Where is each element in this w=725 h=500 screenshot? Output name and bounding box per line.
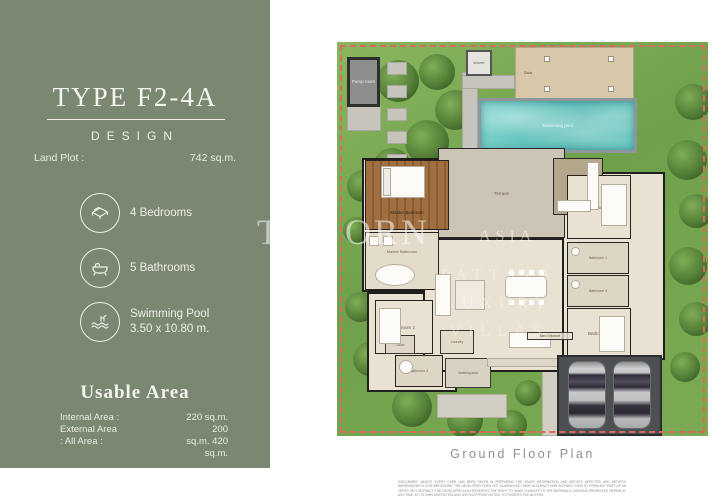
tree: [515, 380, 541, 406]
row-label: : All Area :: [60, 436, 103, 447]
bed: [601, 184, 627, 226]
sala-label: Sala: [524, 70, 532, 75]
bathroom3-label: Bathroom 3: [589, 289, 607, 293]
washing-area-label: Washing area: [458, 371, 478, 375]
disclaimer-text: DISCLAIMER: WHILST EVERY CARE HAS BEEN T…: [398, 480, 626, 497]
brochure-page: { "brochure": { "title": "TYPE F2-4A", "…: [0, 0, 725, 500]
usable-row-external: External Area 200: [60, 424, 228, 435]
outdoor-shower: shower: [466, 50, 492, 76]
tree: [675, 84, 708, 120]
pump-room: Pump room: [347, 57, 380, 107]
sink: [383, 236, 393, 246]
sink: [369, 236, 379, 246]
bed: [379, 308, 401, 344]
feature-bathrooms-label: 5 Bathrooms: [130, 261, 195, 276]
tree: [392, 387, 432, 427]
tree: [419, 54, 455, 90]
stepping-stone: [387, 108, 407, 121]
pool-walkway-top: [462, 75, 515, 89]
bathroom1-label: Bathroom 1: [589, 256, 607, 260]
row-value: sq.m.: [205, 448, 228, 459]
garden-patio: [437, 394, 507, 418]
land-plot-row: Land Plot : 742 sq.m.: [34, 152, 236, 164]
pump-room-label: Pump room: [352, 79, 375, 84]
feature-bathrooms: 5 Bathrooms: [80, 248, 195, 288]
row-value: 200: [212, 424, 228, 435]
spec-panel: TYPE F2-4A DESIGN Land Plot : 742 sq.m. …: [0, 0, 270, 468]
sofa: [435, 274, 451, 316]
bathtub-icon: [80, 248, 120, 288]
main-entrance: Main Entrance: [527, 332, 573, 340]
car: [614, 362, 650, 428]
pump-room-pad: [347, 105, 381, 131]
row-label: Internal Area :: [60, 412, 119, 423]
toilet: [571, 280, 580, 289]
shower-label: shower: [473, 61, 484, 65]
sun-deck: Sala: [515, 47, 634, 100]
bed-pillows: [383, 168, 391, 196]
deck-pillar: [544, 86, 550, 92]
rug: [455, 280, 485, 310]
row-value: 220 sq.m.: [186, 412, 228, 423]
bed: [599, 316, 625, 352]
page-title: TYPE F2-4A: [0, 82, 270, 113]
deck-pillar: [608, 86, 614, 92]
land-plot-label: Land Plot :: [34, 152, 84, 164]
floor-plan: Pump room shower Sala Swimming pool Terr…: [337, 42, 708, 436]
round-tub: [399, 360, 413, 374]
pool-label: Swimming pool: [542, 123, 573, 128]
feature-pool-title: Swimming Pool: [130, 307, 209, 322]
feature-pool-size: 3.50 x 10.80 m.: [130, 322, 209, 337]
tree: [670, 352, 700, 382]
tree: [669, 247, 707, 285]
dining-table: [505, 276, 547, 298]
row-value: sq.m. 420: [186, 436, 228, 447]
feature-bedrooms-label: 4 Bedrooms: [130, 206, 192, 221]
laundry: Laundry: [440, 330, 474, 354]
land-plot-value: 742 sq.m.: [190, 152, 236, 164]
bathtub: [375, 264, 415, 286]
terrace-label: Terrace: [494, 191, 509, 196]
feature-bedrooms: 4 Bedrooms: [80, 193, 192, 233]
feature-pool: Swimming Pool 3.50 x 10.80 m.: [80, 302, 209, 342]
washing-area: Washing area: [445, 358, 491, 388]
subtitle: DESIGN: [0, 129, 270, 143]
pool-icon: [80, 302, 120, 342]
deck-pillar: [608, 56, 614, 62]
sunken-sofa: [557, 200, 591, 212]
stepping-stone: [387, 62, 407, 75]
feature-pool-label: Swimming Pool 3.50 x 10.80 m.: [130, 307, 209, 337]
tree: [679, 194, 708, 228]
tree: [679, 302, 708, 336]
tree: [667, 140, 707, 180]
plan-caption: Ground Floor Plan: [337, 447, 708, 461]
terrace: Terrace: [438, 148, 565, 238]
usable-area-title: Usable Area: [0, 382, 270, 404]
dining-chairs: [509, 270, 514, 275]
master-bathroom-label: Master Bathroom: [387, 250, 418, 255]
usable-row-internal: Internal Area : 220 sq.m.: [60, 412, 228, 423]
swimming-pool: Swimming pool: [478, 98, 637, 153]
main-entrance-label: Main Entrance: [540, 334, 561, 338]
usable-row-units: sq.m.: [60, 448, 228, 459]
stepping-stone: [387, 85, 407, 98]
master-bedroom-label: Master Bedroom: [390, 210, 423, 215]
usable-row-all: : All Area : sq.m. 420: [60, 436, 228, 447]
laundry-label: Laundry: [451, 340, 464, 344]
bathroom2-label: Bathroom 2: [410, 369, 428, 373]
toilet: [571, 247, 580, 256]
stepping-stone: [387, 131, 407, 144]
deck-pillar: [544, 56, 550, 62]
car: [569, 362, 605, 428]
title-divider: [47, 119, 225, 120]
bed-icon: [80, 193, 120, 233]
row-label: External Area: [60, 424, 117, 435]
